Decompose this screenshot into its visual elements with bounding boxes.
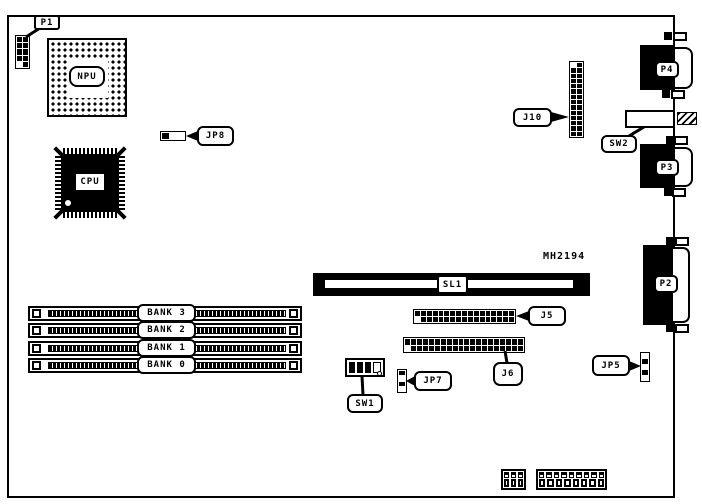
callout-npu: NPU — [69, 66, 105, 87]
callout-jp8: JP8 — [197, 126, 234, 146]
callout-p4: P4 — [655, 61, 679, 78]
p4-tab-bottom-black — [662, 90, 670, 98]
cpu-pins-bottom — [63, 211, 117, 218]
callout-bank1: BANK 1 — [137, 339, 196, 357]
header-j5 — [413, 309, 516, 324]
sw1-label: SW1 — [355, 399, 374, 409]
callout-j5: J5 — [528, 306, 566, 326]
header-j6 — [403, 337, 525, 353]
p3-tab-bottom-black — [664, 188, 672, 196]
bank3-label: BANK 3 — [147, 308, 186, 318]
bank0-label: BANK 0 — [147, 360, 186, 370]
callout-sw2: SW2 — [601, 135, 637, 153]
callout-bank3: BANK 3 — [137, 304, 196, 322]
callout-j10: J10 — [513, 108, 552, 127]
cpu-pin1-dot — [65, 200, 71, 206]
callout-sw1: SW1 — [347, 394, 383, 413]
cpu-pins-right — [118, 156, 125, 210]
p3-tab-top — [674, 136, 688, 145]
sw1-dot — [377, 371, 382, 376]
callout-sl1: SL1 — [437, 275, 468, 294]
switch-sw2 — [625, 110, 675, 128]
power-connector-large — [536, 469, 607, 490]
callout-jp7: JP7 — [414, 371, 452, 391]
callout-bank2: BANK 2 — [137, 321, 196, 339]
callout-j6: J6 — [493, 362, 523, 386]
j10-label: J10 — [523, 113, 542, 123]
p4-tab-top — [673, 32, 687, 41]
sw2-actuator — [677, 112, 697, 125]
p4-tab-top-black — [664, 32, 672, 40]
callout-p3: P3 — [655, 159, 679, 176]
p2-tab-top — [675, 237, 689, 246]
sw2-label: SW2 — [609, 139, 628, 149]
cpu-label: CPU — [80, 177, 99, 187]
p3-tab-top-black — [666, 136, 674, 144]
callout-bank0: BANK 0 — [137, 356, 196, 374]
jp5-label: JP5 — [601, 361, 620, 371]
jp7-label: JP7 — [423, 376, 442, 386]
p1-label: P1 — [41, 18, 54, 28]
j5-label: J5 — [541, 311, 554, 321]
jumper-jp5 — [640, 352, 650, 382]
p2-tab-bottom — [675, 324, 689, 333]
jumper-jp7 — [397, 369, 407, 393]
callout-p1: P1 — [34, 15, 60, 30]
power-connector-small — [501, 469, 526, 490]
callout-jp5: JP5 — [592, 355, 630, 376]
cpu-chip: CPU — [55, 148, 125, 218]
bank1-label: BANK 1 — [147, 343, 186, 353]
motherboard-diagram: P1 NPU CPU JP8 J10 P4 — [0, 0, 702, 504]
connector-p1 — [15, 35, 30, 69]
part-number: MH2194 — [543, 251, 585, 262]
header-j10 — [569, 61, 584, 138]
cpu-label-box: CPU — [76, 174, 104, 190]
bank2-label: BANK 2 — [147, 325, 186, 335]
jumper-jp8 — [160, 131, 186, 141]
jp8-label: JP8 — [206, 131, 225, 141]
p4-tab-bottom — [671, 90, 685, 99]
p3-label: P3 — [661, 163, 674, 173]
npu-label: NPU — [77, 72, 96, 82]
sl1-label: SL1 — [443, 280, 462, 290]
callout-p2: P2 — [654, 275, 678, 293]
p4-label: P4 — [661, 65, 674, 75]
p3-tab-bottom — [672, 188, 686, 197]
j6-label: J6 — [502, 369, 515, 379]
p2-label: P2 — [660, 279, 673, 289]
p2-tab-bottom-black — [666, 324, 674, 332]
p2-tab-top-black — [666, 237, 674, 245]
